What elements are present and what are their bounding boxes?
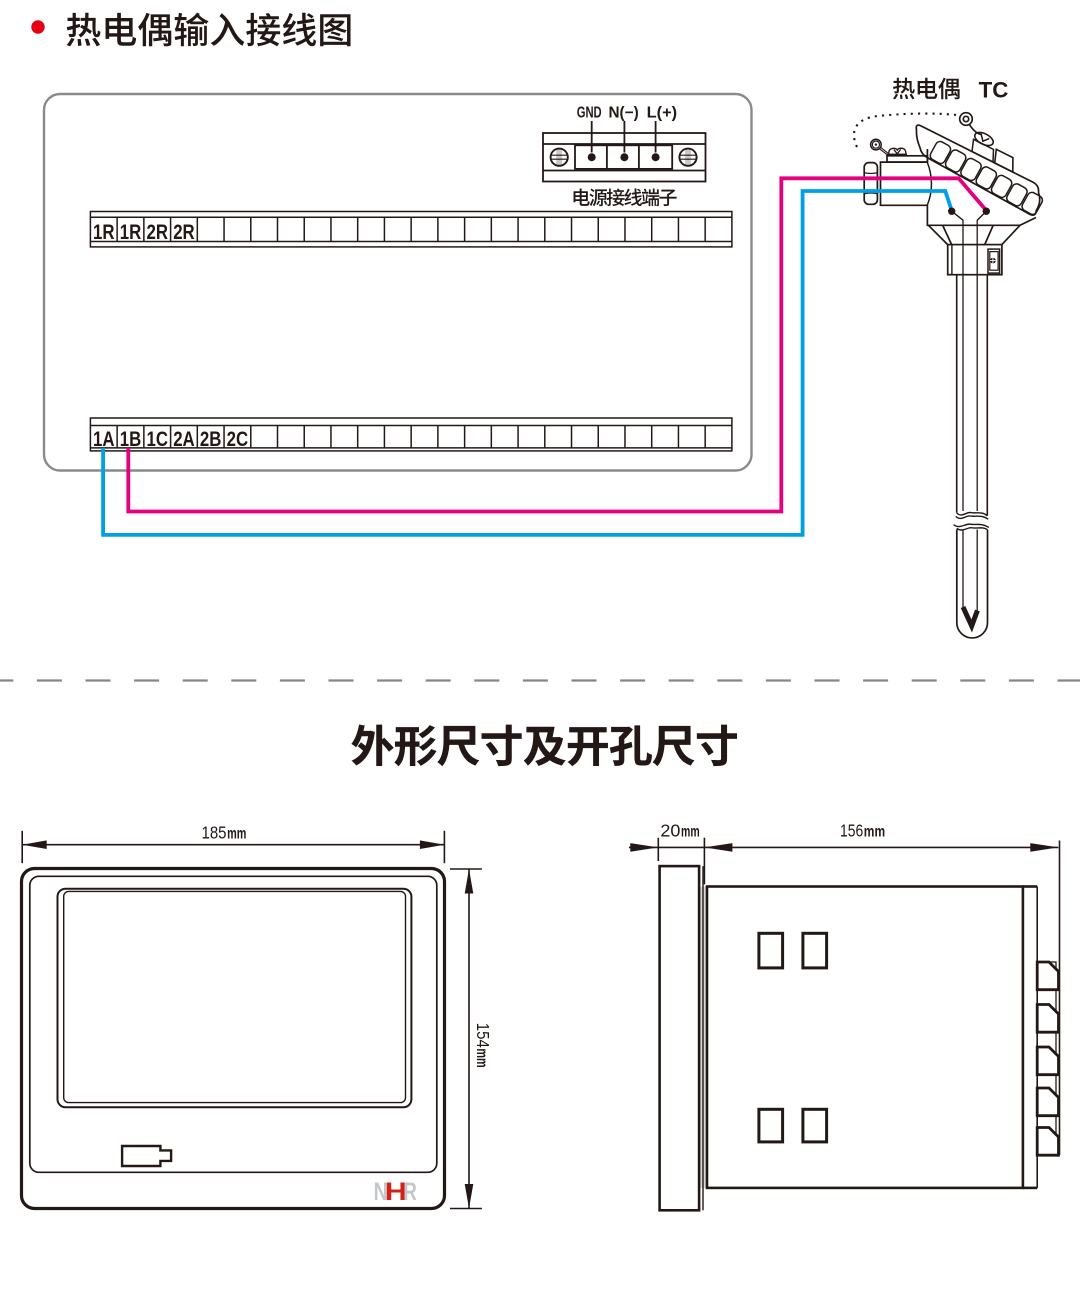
- svg-text:185: 185: [202, 823, 227, 843]
- svg-text:2A: 2A: [173, 428, 195, 451]
- svg-text:mm: mm: [227, 826, 246, 843]
- svg-text:2B: 2B: [200, 428, 222, 451]
- svg-text:1R: 1R: [120, 221, 142, 244]
- svg-text:TC: TC: [979, 77, 1009, 102]
- svg-text:156: 156: [840, 820, 863, 840]
- svg-text:2C: 2C: [227, 428, 249, 451]
- svg-text:1C: 1C: [146, 428, 168, 451]
- svg-text:1A: 1A: [93, 428, 115, 451]
- svg-text:GND: GND: [577, 105, 602, 122]
- svg-text:2R: 2R: [146, 221, 168, 244]
- svg-text:2R: 2R: [173, 221, 195, 244]
- svg-text:mm: mm: [681, 823, 700, 840]
- svg-text:mm: mm: [473, 1048, 490, 1067]
- svg-text:1R: 1R: [93, 221, 115, 244]
- svg-text:L(+): L(+): [647, 105, 678, 122]
- svg-text:154: 154: [473, 1023, 493, 1048]
- svg-text:1B: 1B: [120, 428, 142, 451]
- svg-text:mm: mm: [864, 823, 885, 840]
- svg-text:N(−): N(−): [609, 105, 639, 122]
- svg-text:R: R: [403, 1177, 417, 1205]
- svg-text:20: 20: [660, 820, 680, 840]
